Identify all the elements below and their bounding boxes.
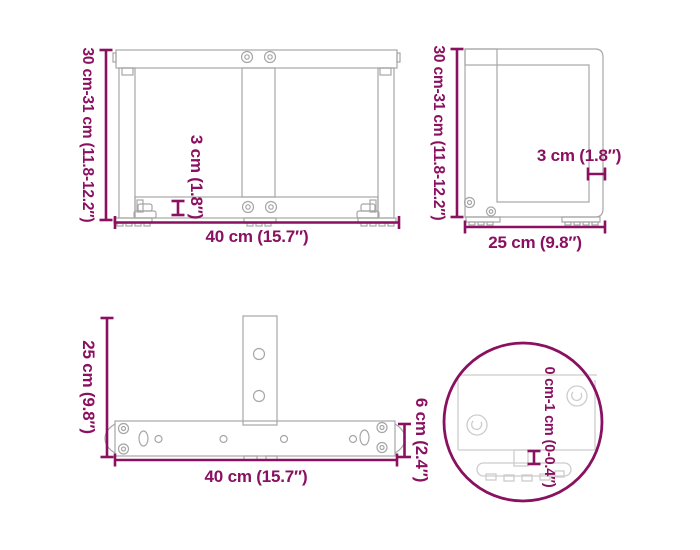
side-thickness-label: 3 cm (1.8″) (537, 146, 621, 166)
dimension-diagram: 30 cm-31 cm (11.8-12.2″) 40 cm (15.7″) 3… (0, 0, 700, 550)
front-view-drawing (113, 50, 400, 226)
detail-adjustment-label: 0 cm-1 cm (0-0.4″) (541, 366, 557, 487)
top-view-drawing (105, 316, 405, 460)
top-width-label: 40 cm (15.7″) (205, 467, 308, 487)
top-depth-label: 25 cm (9.8″) (78, 340, 98, 434)
front-width-label: 40 cm (15.7″) (206, 227, 309, 247)
side-depth-label: 25 cm (9.8″) (488, 233, 582, 253)
front-thickness-label: 3 cm (1.8″) (186, 135, 206, 219)
front-height-label: 30 cm-31 cm (11.8-12.2″) (78, 48, 96, 223)
diagram-canvas (0, 0, 700, 550)
top-bar-height-label: 6 cm (2.4″) (411, 398, 431, 482)
side-height-label: 30 cm-31 cm (11.8-12.2″) (429, 46, 447, 221)
side-view-drawing (465, 49, 604, 225)
detail-view-dimensions (528, 451, 541, 464)
